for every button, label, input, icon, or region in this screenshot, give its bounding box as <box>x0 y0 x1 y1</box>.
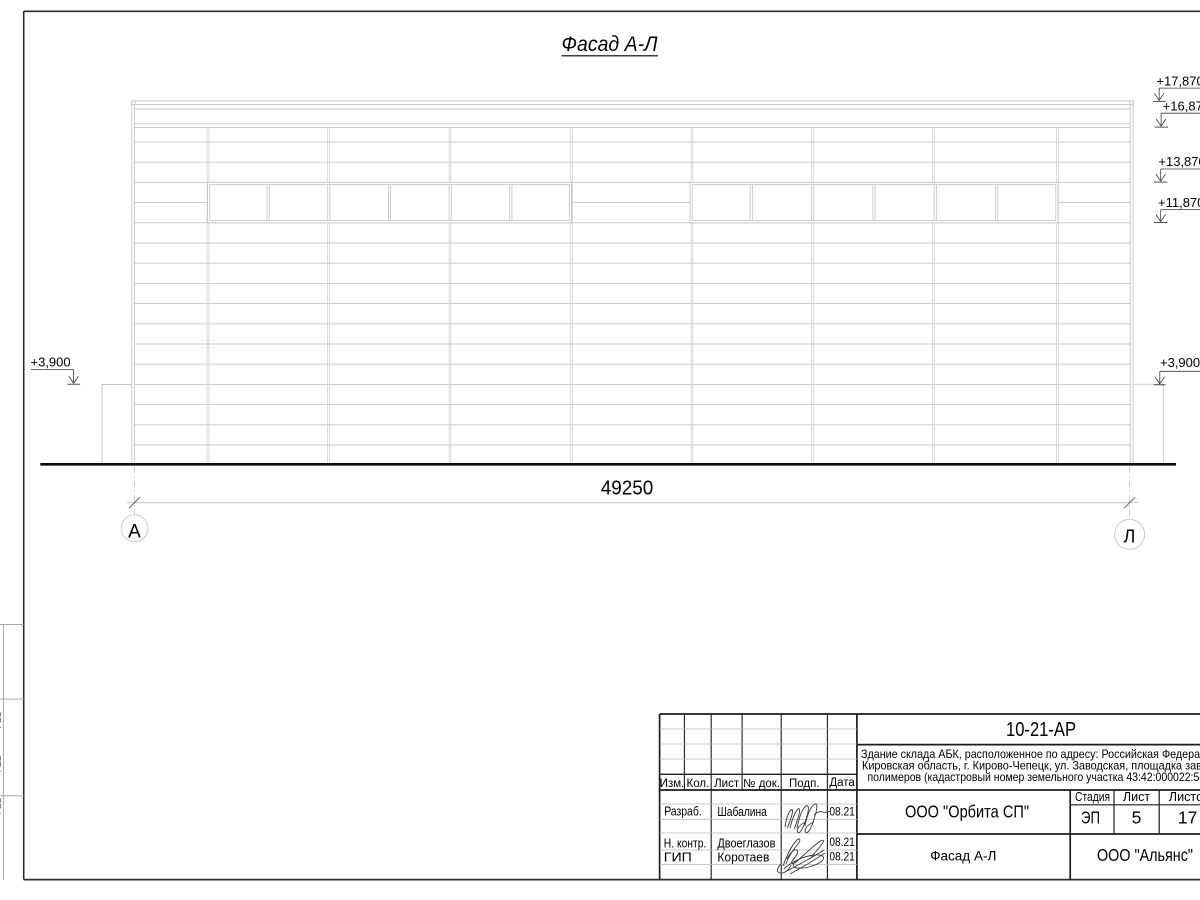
svg-text:Коротаев: Коротаев <box>717 850 769 864</box>
svg-text:5: 5 <box>1132 808 1142 828</box>
svg-text:Кол.: Кол. <box>687 778 710 790</box>
svg-text:Фасад А-Л: Фасад А-Л <box>562 32 658 56</box>
svg-text:ООО "Орбита СП": ООО "Орбита СП" <box>905 802 1029 822</box>
svg-text:+16,870: +16,870 <box>1163 99 1200 114</box>
svg-text:+11,870: +11,870 <box>1158 195 1200 210</box>
svg-text:Разраб.: Разраб. <box>664 804 702 818</box>
svg-text:Изм.: Изм. <box>660 778 685 790</box>
svg-text:+3,900: +3,900 <box>31 354 71 369</box>
svg-text:Листов: Листов <box>1169 790 1200 804</box>
svg-text:49250: 49250 <box>601 478 654 500</box>
svg-text:ООО "Альянс": ООО "Альянс" <box>1097 845 1193 865</box>
svg-text:Стадия: Стадия <box>1075 790 1110 804</box>
svg-text:№ док.: № док. <box>743 778 780 790</box>
svg-text:08.21: 08.21 <box>829 851 855 863</box>
svg-text:ЭП: ЭП <box>1081 808 1100 828</box>
svg-text:17: 17 <box>1178 808 1197 828</box>
svg-text:Лист: Лист <box>1123 790 1150 804</box>
svg-text:Л: Л <box>1123 526 1135 546</box>
svg-text:08.21: 08.21 <box>829 837 855 849</box>
svg-text:.-21: .-21 <box>0 711 4 729</box>
svg-text:08.21: 08.21 <box>829 806 855 818</box>
svg-text:Фасад А-Л: Фасад А-Л <box>930 848 996 863</box>
svg-text:Лист: Лист <box>714 778 740 790</box>
svg-text:полимеров (кадастровый номер з: полимеров (кадастровый номер земельного … <box>868 770 1200 784</box>
svg-text:Подп.: Подп. <box>789 778 820 790</box>
svg-text:.-21: .-21 <box>0 755 4 773</box>
svg-text:А: А <box>128 521 141 542</box>
svg-text:10-21-АР: 10-21-АР <box>1006 719 1076 741</box>
svg-text:Шабалина: Шабалина <box>717 805 767 819</box>
svg-text:+17,870: +17,870 <box>1156 73 1200 88</box>
svg-text:Н. контр.: Н. контр. <box>664 836 707 850</box>
svg-text:Двоеглазов: Двоеглазов <box>717 836 775 850</box>
svg-text:+13,870: +13,870 <box>1158 154 1200 169</box>
svg-text:.-21: .-21 <box>0 797 4 815</box>
svg-text:ГИП: ГИП <box>664 850 692 864</box>
svg-text:+3,900: +3,900 <box>1160 355 1200 370</box>
svg-text:Дата: Дата <box>829 777 855 789</box>
